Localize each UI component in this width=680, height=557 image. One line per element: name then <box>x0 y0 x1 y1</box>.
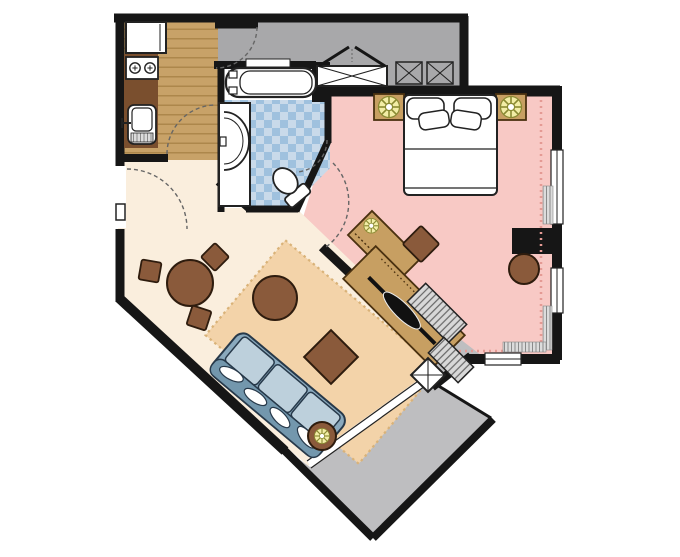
tub-faucet-bottom <box>229 87 237 94</box>
kitchen-sink-drainboard <box>131 133 153 142</box>
stove-burner-icon <box>145 63 155 73</box>
dining-chair <box>138 259 161 282</box>
side-table-lamp-icon <box>314 428 329 443</box>
built-in-unit <box>512 228 553 254</box>
floor-plan-page <box>0 0 680 557</box>
dining-table <box>167 260 213 306</box>
chair-seat <box>138 259 161 282</box>
table-lamp-icon <box>379 97 400 118</box>
vanity-faucet <box>220 137 226 146</box>
round-stool <box>509 254 539 284</box>
table-lamp-icon <box>501 97 522 118</box>
curtain-bunch-bottom <box>503 342 546 352</box>
entry-door-leaf <box>116 204 125 220</box>
floor-plan-canvas <box>0 0 680 557</box>
round-ottoman <box>253 276 297 320</box>
curtain-bunch-right-upper <box>543 186 553 224</box>
tub-shelf <box>246 59 290 67</box>
tub-faucet-top <box>229 71 237 78</box>
stove-burner-icon <box>130 63 140 73</box>
